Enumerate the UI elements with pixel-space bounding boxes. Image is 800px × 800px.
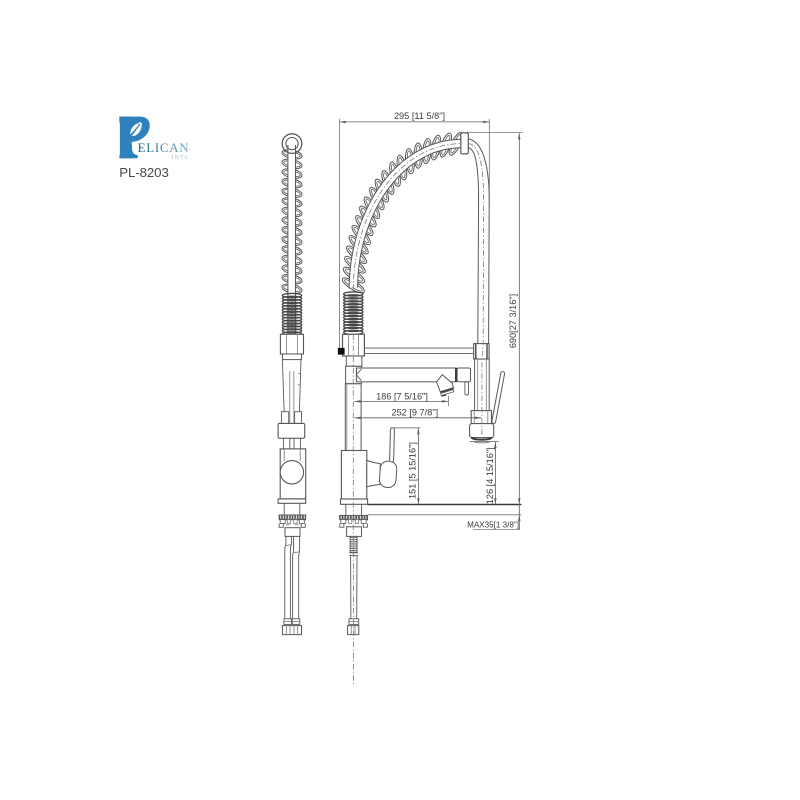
svg-text:690[27 3/16"]: 690[27 3/16"]: [508, 294, 518, 348]
svg-text:252 [9 7/8"]: 252 [9 7/8"]: [391, 408, 438, 418]
svg-text:INTL: INTL: [171, 155, 189, 161]
svg-text:PL-8203: PL-8203: [119, 165, 169, 180]
svg-text:126 [4 15/16"]: 126 [4 15/16"]: [485, 447, 495, 504]
svg-text:151 [5 15/16"]: 151 [5 15/16"]: [407, 442, 417, 499]
svg-text:186 [7 5/16"]: 186 [7 5/16"]: [376, 391, 428, 401]
svg-text:MAX35[1 3/8"]: MAX35[1 3/8"]: [467, 520, 519, 529]
svg-text:ELICAN: ELICAN: [138, 141, 190, 155]
svg-text:295 [11 5/8"]: 295 [11 5/8"]: [394, 111, 445, 121]
